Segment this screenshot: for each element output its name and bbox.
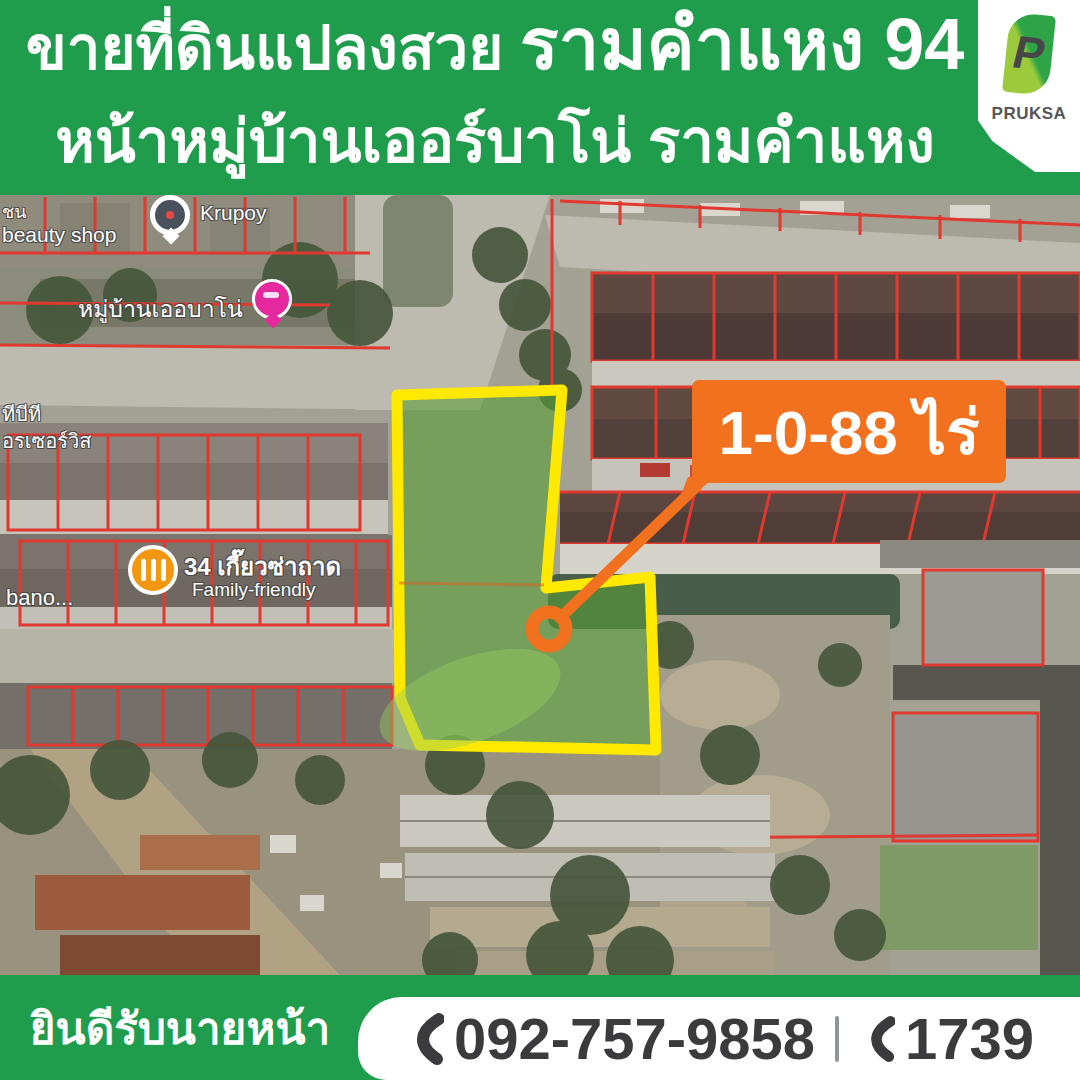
header-banner: ขายที่ดินแปลงสวย รามคำแหง 94 หน้าหมู่บ้า…	[0, 0, 1080, 195]
restaurant-sublabel: Family-friendly	[192, 579, 316, 601]
restaurant-poi-icon	[128, 545, 178, 595]
poi-label-beauty-shop: beauty shop	[2, 223, 116, 247]
left-edge-label-bottom: อรเซอร์วิส	[2, 425, 91, 457]
land-sale-poster: ขายที่ดินแปลงสวย รามคำแหง 94 หน้าหมู่บ้า…	[0, 0, 1080, 1080]
footer-broker-text: ยินดีรับนายหน้า	[0, 975, 360, 1080]
krupoy-poi-pin-icon	[150, 195, 190, 235]
headline-line1: ขายที่ดินแปลงสวย รามคำแหง 94	[26, 7, 965, 83]
pruksa-leaf-icon: P	[1002, 12, 1056, 96]
footer-phone-panel: 092-757-9858 1739	[358, 997, 1080, 1080]
satellite-map: Krupoy ชน beauty shop หมู่บ้านเออบาโน่ ท…	[0, 195, 1080, 975]
poi-label-krupoy: Krupoy	[200, 201, 267, 225]
area-badge: 1-0-88 ไร่	[692, 380, 1006, 483]
headline-emphasis: รามคำแหง 94	[520, 4, 964, 84]
phone-divider	[835, 1016, 839, 1062]
poi-label-partial: ชน	[2, 197, 27, 226]
phone-icon	[410, 1012, 444, 1066]
phone-number-main: 092-757-9858	[454, 1005, 815, 1072]
footer-bar: ยินดีรับนายหน้า 092-757-9858 1739	[0, 975, 1080, 1080]
headline-regular: ขายที่ดินแปลงสวย	[26, 15, 504, 82]
pruksa-brand-name: PRUKSA	[978, 104, 1080, 124]
village-label: หมู่บ้านเออบาโน่	[78, 291, 243, 327]
phone-icon	[865, 1015, 895, 1063]
phone-number-hotline: 1739	[905, 1005, 1034, 1072]
fork-knife-icon	[141, 559, 166, 581]
urbano-partial-label: bano...	[6, 585, 73, 611]
pruksa-letter: P	[996, 12, 1061, 95]
headline-line2: หน้าหมู่บ้านเออร์บาโน่ รามคำแหง	[55, 93, 934, 188]
village-poi-pin-icon	[252, 279, 292, 319]
